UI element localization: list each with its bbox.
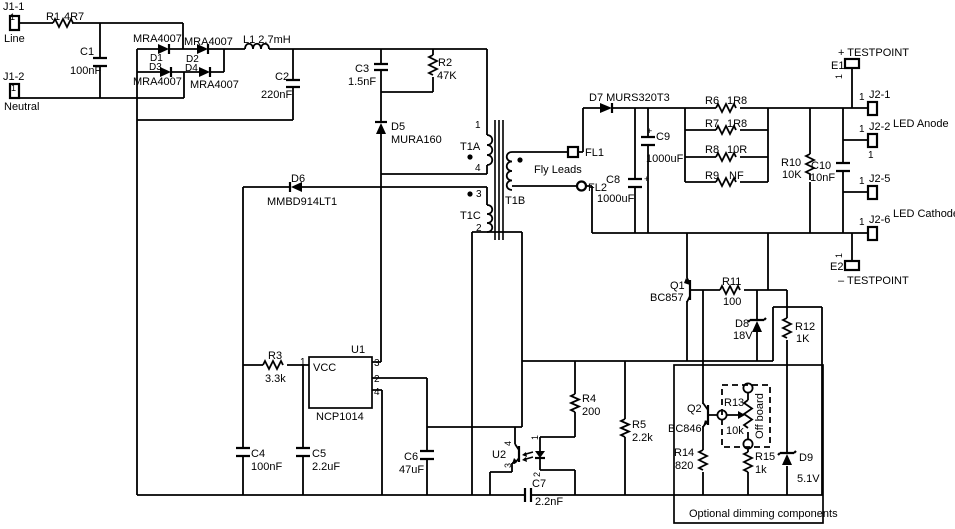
label-r15-ref: R15 <box>755 451 775 463</box>
label-off-board: Off board <box>754 393 766 439</box>
label-j2-2-pin-b: 1 <box>868 150 874 161</box>
label-r6-ref: R6 <box>705 95 719 107</box>
label-c10-ref: C10 <box>811 160 831 172</box>
label-c2-val: 220nF <box>261 89 292 101</box>
label-r3-ref: R3 <box>268 350 282 362</box>
label-r5-val: 2.2k <box>632 432 653 444</box>
label-r14-ref: R14 <box>674 447 694 459</box>
label-r2-ref: R2 <box>438 57 452 69</box>
label-led-anode: LED Anode <box>893 118 949 130</box>
label-d7: D7 MURS320T3 <box>589 92 670 104</box>
label-c5-ref: C5 <box>312 448 326 460</box>
label-j2-2-pin: 1 <box>859 124 865 135</box>
label-j2-5: J2-5 <box>869 173 890 185</box>
label-c4-val: 100nF <box>251 461 282 473</box>
label-j2-5-pin: 1 <box>859 176 865 187</box>
label-r11-ref: R11 <box>722 276 741 288</box>
label-d3-ref: D3 <box>149 62 162 73</box>
label-neutral: Neutral <box>4 101 39 113</box>
label-u1-pin2: 2 <box>374 374 380 385</box>
label-r4-val: 200 <box>582 406 600 418</box>
label-t1c: T1C <box>460 210 481 222</box>
label-line: Line <box>4 33 25 45</box>
label-r7-ref: R7 <box>705 118 719 130</box>
label-j2-6-pin: 1 <box>859 217 865 228</box>
label-j2-1: J2-1 <box>869 89 890 101</box>
label-u1-pin3: 3 <box>374 358 380 369</box>
polarity-dot-t1a <box>467 154 472 159</box>
zener-d9 <box>778 451 796 465</box>
label-c4-ref: C4 <box>251 448 265 460</box>
label-c1-ref: C1 <box>80 46 94 58</box>
connector-j2-6 <box>868 227 877 240</box>
label-c7-val: 2.2nF <box>535 496 563 508</box>
label-c5-val: 2.2uF <box>312 461 340 473</box>
label-optional: Optional dimming components <box>689 508 838 520</box>
label-e1-ref: E1 <box>831 60 844 72</box>
diode-d7 <box>600 103 612 113</box>
label-u1-ref: U1 <box>351 344 365 356</box>
label-u2-pin1: 1 <box>530 435 540 440</box>
label-c3-val: 1.5nF <box>348 76 376 88</box>
label-d3-part: MRA4007 <box>133 76 182 88</box>
transistor-q1 <box>684 278 690 302</box>
label-d1-part: MRA4007 <box>133 33 182 45</box>
label-fly-leads: Fly Leads <box>534 164 582 176</box>
label-u1-part: NCP1014 <box>316 411 364 423</box>
label-r14-val: 820 <box>675 460 693 472</box>
label-r5-ref: R5 <box>632 419 646 431</box>
label-c8-plus: + <box>644 174 649 184</box>
label-r3-val: 3.3k <box>265 373 286 385</box>
schematic-page: J1-1 1 Line J1-2 1 Neutral R1 4R7 C1 100… <box>0 0 955 529</box>
label-l1: L1 2.7mH <box>243 34 291 46</box>
label-c10-val: 10nF <box>810 172 835 184</box>
label-r11-val: 100 <box>723 296 741 308</box>
label-r13-val: 10k <box>726 425 744 437</box>
label-e1-tp: + TESTPOINT <box>838 47 909 59</box>
label-u1-pin4: 4 <box>374 387 380 398</box>
label-r8-val: 10R <box>727 144 747 156</box>
label-t1a-pin4: 4 <box>475 163 481 174</box>
label-r7-val: 1R8 <box>727 118 747 130</box>
testpoint-e1 <box>845 59 859 68</box>
label-u1-vcc: VCC <box>313 362 336 374</box>
label-led-cathode: LED Cathode <box>893 208 955 220</box>
label-u1-pin1: 1 <box>300 357 306 368</box>
label-d5-ref: D5 <box>391 121 405 133</box>
label-r8-ref: R8 <box>705 144 719 156</box>
label-d9-ref: D9 <box>799 452 813 464</box>
label-u2-pin4: 4 <box>503 441 513 446</box>
transformer-t1 <box>467 120 522 240</box>
label-r4-ref: R4 <box>582 393 596 405</box>
label-d8-ref: D8 <box>735 318 749 330</box>
label-r12-val: 1K <box>796 333 810 345</box>
label-j2-2: J2-2 <box>869 121 890 133</box>
label-c1-val: 100nF <box>70 65 101 77</box>
label-d6-part: MMBD914LT1 <box>267 196 337 208</box>
label-r1-val: 4R7 <box>64 11 84 23</box>
label-e1-pin: 1 <box>834 74 844 79</box>
label-q1-part: BC857 <box>650 292 684 304</box>
label-r9-val: NF <box>729 170 744 182</box>
connector-j2-5 <box>868 186 877 199</box>
testpoint-e2 <box>845 261 859 270</box>
optional-dimming-box <box>674 365 823 523</box>
label-t1c-pin3: 3 <box>476 189 482 200</box>
label-u2-pin2: 2 <box>532 472 542 477</box>
label-q2-ref: Q2 <box>687 403 702 415</box>
label-c6-ref: C6 <box>404 451 418 463</box>
label-u2-pin3: 3 <box>503 463 513 468</box>
label-c9-ref: C9 <box>656 131 670 143</box>
fl2-terminal <box>577 182 586 191</box>
label-j2-1-pin: 1 <box>859 92 865 103</box>
label-j2-6: J2-6 <box>869 214 890 226</box>
label-t1b: T1B <box>505 195 525 207</box>
diode-d5 <box>375 122 387 134</box>
label-r13-ref: R13 <box>724 397 744 409</box>
label-j1-2: J1-2 <box>3 71 24 83</box>
label-c9-plus: + <box>647 126 652 136</box>
fl1-terminal <box>568 147 578 157</box>
label-u2-ref: U2 <box>492 449 506 461</box>
label-r9-ref: R9 <box>705 170 719 182</box>
label-c8-val: 1000uF <box>597 193 635 205</box>
label-q2-part: BC846 <box>668 423 702 435</box>
connector-symbols <box>10 16 877 270</box>
label-d2-part: MRA4007 <box>184 36 233 48</box>
label-e2-tp: – TESTPOINT <box>838 275 909 287</box>
label-r6-val: 1R8 <box>727 95 747 107</box>
label-c7-ref: C7 <box>532 478 546 490</box>
label-c9-val: 1000uF <box>646 153 684 165</box>
connector-j2-1 <box>868 102 877 115</box>
label-d8-val: 18V <box>733 330 753 342</box>
label-r10-ref: R10 <box>781 157 801 169</box>
label-d6-ref: D6 <box>291 173 305 185</box>
label-j1-2-pin: 1 <box>11 83 16 93</box>
label-j1-1-pin: 1 <box>10 12 15 22</box>
led-driver-schematic: J1-1 1 Line J1-2 1 Neutral R1 4R7 C1 100… <box>0 0 955 529</box>
label-fl1: FL1 <box>585 147 604 159</box>
label-t1c-pin2: 2 <box>476 223 482 234</box>
label-t1a: T1A <box>460 141 481 153</box>
label-c2-ref: C2 <box>275 71 289 83</box>
label-r12-ref: R12 <box>795 321 815 333</box>
label-c8-ref: C8 <box>606 174 620 186</box>
label-d9-val: 5.1V <box>797 473 820 485</box>
polarity-dot-t1c <box>467 191 472 196</box>
label-r10-val: 10K <box>782 169 802 181</box>
diode-d4 <box>199 67 210 77</box>
transistor-q2 <box>703 403 708 427</box>
label-c3-ref: C3 <box>355 63 369 75</box>
label-r2-val: 47K <box>437 70 457 82</box>
label-r1-ref: R1 <box>46 11 60 23</box>
label-t1a-pin1: 1 <box>475 120 481 131</box>
connector-j2-2 <box>868 134 877 147</box>
label-d4-ref: D4 <box>185 63 198 74</box>
polarity-dot-t1b <box>517 157 522 162</box>
label-r15-val: 1k <box>755 464 767 476</box>
label-d4-part: MRA4007 <box>190 79 239 91</box>
wiper-arrow <box>738 411 745 419</box>
label-d5-part: MURA160 <box>391 134 442 146</box>
label-e2-pin: 1 <box>834 253 844 258</box>
label-q1-ref: Q1 <box>670 280 685 292</box>
label-c6-val: 47uF <box>399 464 424 476</box>
label-e2-ref: E2 <box>830 261 843 273</box>
